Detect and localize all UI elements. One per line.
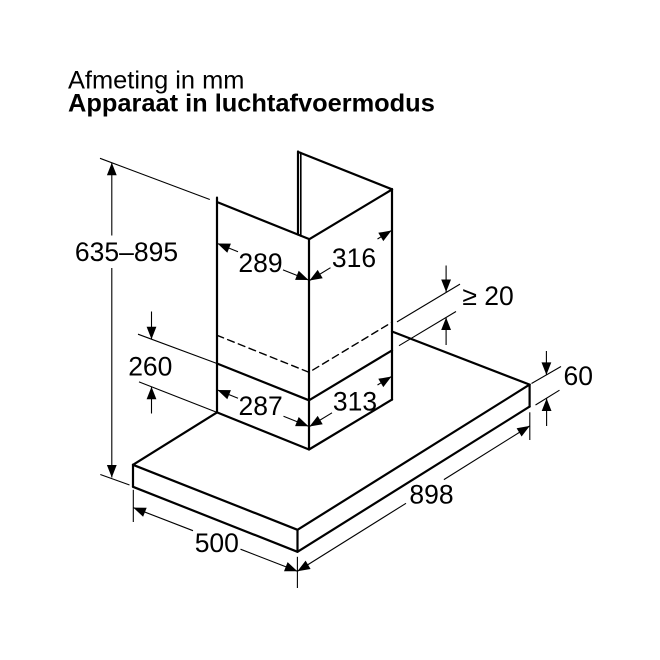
svg-text:289: 289 <box>238 248 282 278</box>
svg-text:316: 316 <box>332 243 376 273</box>
svg-text:500: 500 <box>195 528 239 558</box>
svg-text:Apparaat in luchtafvoermodus: Apparaat in luchtafvoermodus <box>68 89 435 117</box>
svg-text:60: 60 <box>564 361 593 391</box>
svg-text:260: 260 <box>128 351 172 381</box>
svg-text:635–895: 635–895 <box>75 237 178 267</box>
svg-text:287: 287 <box>238 391 282 421</box>
svg-text:≥ 20: ≥ 20 <box>462 281 513 311</box>
svg-text:898: 898 <box>409 479 453 509</box>
svg-text:313: 313 <box>333 386 377 416</box>
